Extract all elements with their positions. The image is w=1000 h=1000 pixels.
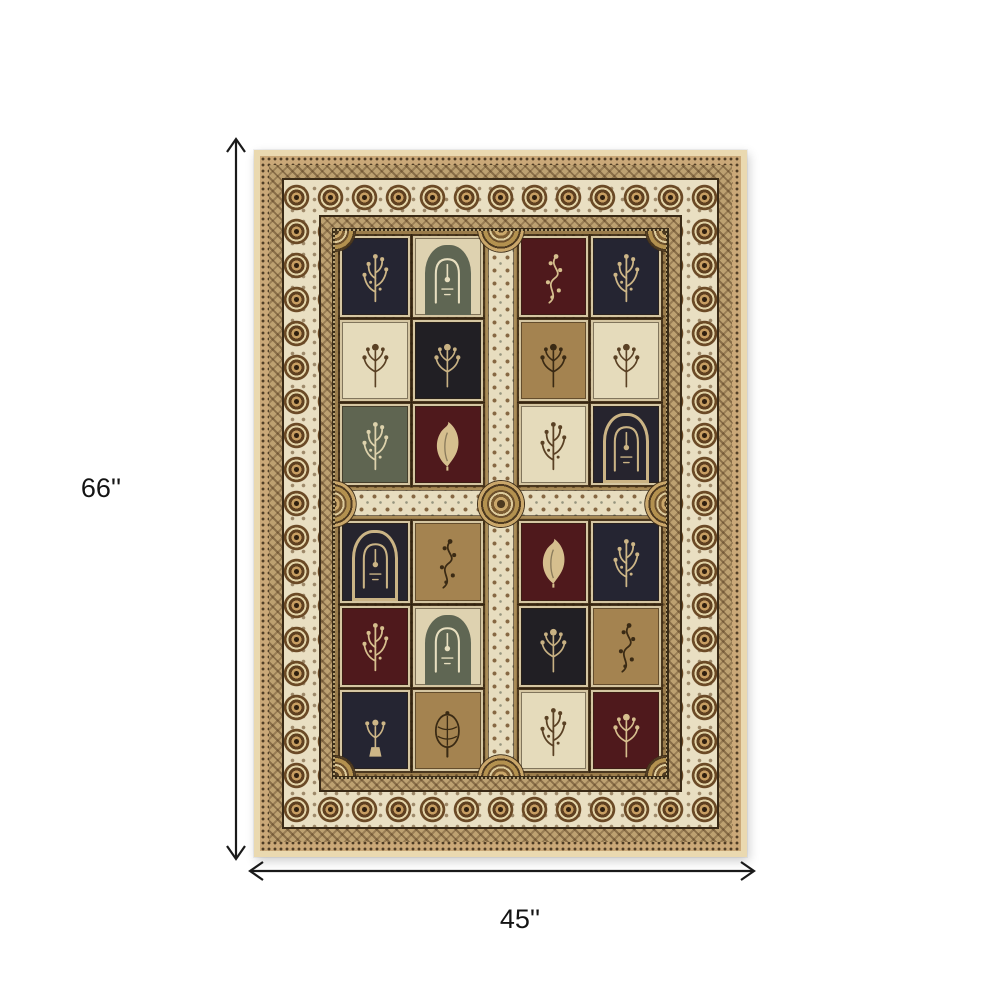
tree-motif-icon [606,531,647,593]
rug-panel-r3c3 [521,406,587,483]
rug-panel-r3c4 [593,406,659,483]
rug-panel-r5c4 [593,608,659,685]
rug-panel-r6c2 [415,692,481,769]
floral-motif-icon [355,330,396,392]
rug-panel-r4c1 [342,523,408,600]
floral-motif-icon [427,330,468,392]
rug-panel-r4c3 [521,523,587,600]
rug-main-rosette-border [282,178,719,829]
rug-panel-r2c2 [415,322,481,399]
floral-motif-icon [606,700,647,762]
floral-motif-icon [606,330,647,392]
rug-tan-guard-border [269,165,732,842]
rug-panel-r5c1 [342,608,408,685]
tree-motif-icon [533,414,574,476]
rug-panel-r1c1 [342,238,408,315]
leaf-motif-icon [533,531,574,593]
arch-motif-icon [606,414,647,476]
rug-panel-r6c1 [342,692,408,769]
rug-panel-r2c4 [593,322,659,399]
product-dimension-diagram: 66'' 45'' [0,0,1000,1000]
height-dimension-label: 66'' [46,474,156,504]
rug-panel-r1c2 [415,238,481,315]
plant-motif-icon [427,700,468,762]
floral-motif-icon [533,330,574,392]
rug-image [254,150,747,857]
rug-panel-r2c1 [342,322,408,399]
rug-outer-guard-border [260,156,741,851]
tree-motif-icon [606,246,647,308]
rug-panel-r4c2 [415,523,481,600]
tree-motif-icon [355,246,396,308]
vine-motif-icon [427,531,468,593]
rug-field [335,231,666,776]
rug-panel-r1c4 [593,238,659,315]
vase-motif-icon [355,700,396,762]
tree-motif-icon [355,414,396,476]
floral-motif-icon [533,615,574,677]
rug-panel-r2c3 [521,322,587,399]
vine-motif-icon [533,246,574,308]
leaf-motif-icon [427,414,468,476]
rug-inner-tan-guard-border [319,215,682,792]
arch-motif-icon [427,246,468,308]
vine-motif-icon [606,615,647,677]
center-medallion [478,481,524,527]
rug-panel-r5c3 [521,608,587,685]
rug-inner-dark-guard-border [332,228,669,779]
rug-panel-r3c1 [342,406,408,483]
tree-motif-icon [355,615,396,677]
height-dimension-arrow [223,132,249,866]
rug-panel-r4c4 [593,523,659,600]
rug-panel-r3c2 [415,406,481,483]
arch-motif-icon [355,531,396,593]
tree-motif-icon [533,700,574,762]
arch-motif-icon [427,615,468,677]
width-dimension-arrow [242,858,762,884]
width-dimension-label: 45'' [465,905,575,935]
rug-panel-r5c2 [415,608,481,685]
rug-panel-r6c4 [593,692,659,769]
rug-panel-r6c3 [521,692,587,769]
rug-panel-r1c3 [521,238,587,315]
